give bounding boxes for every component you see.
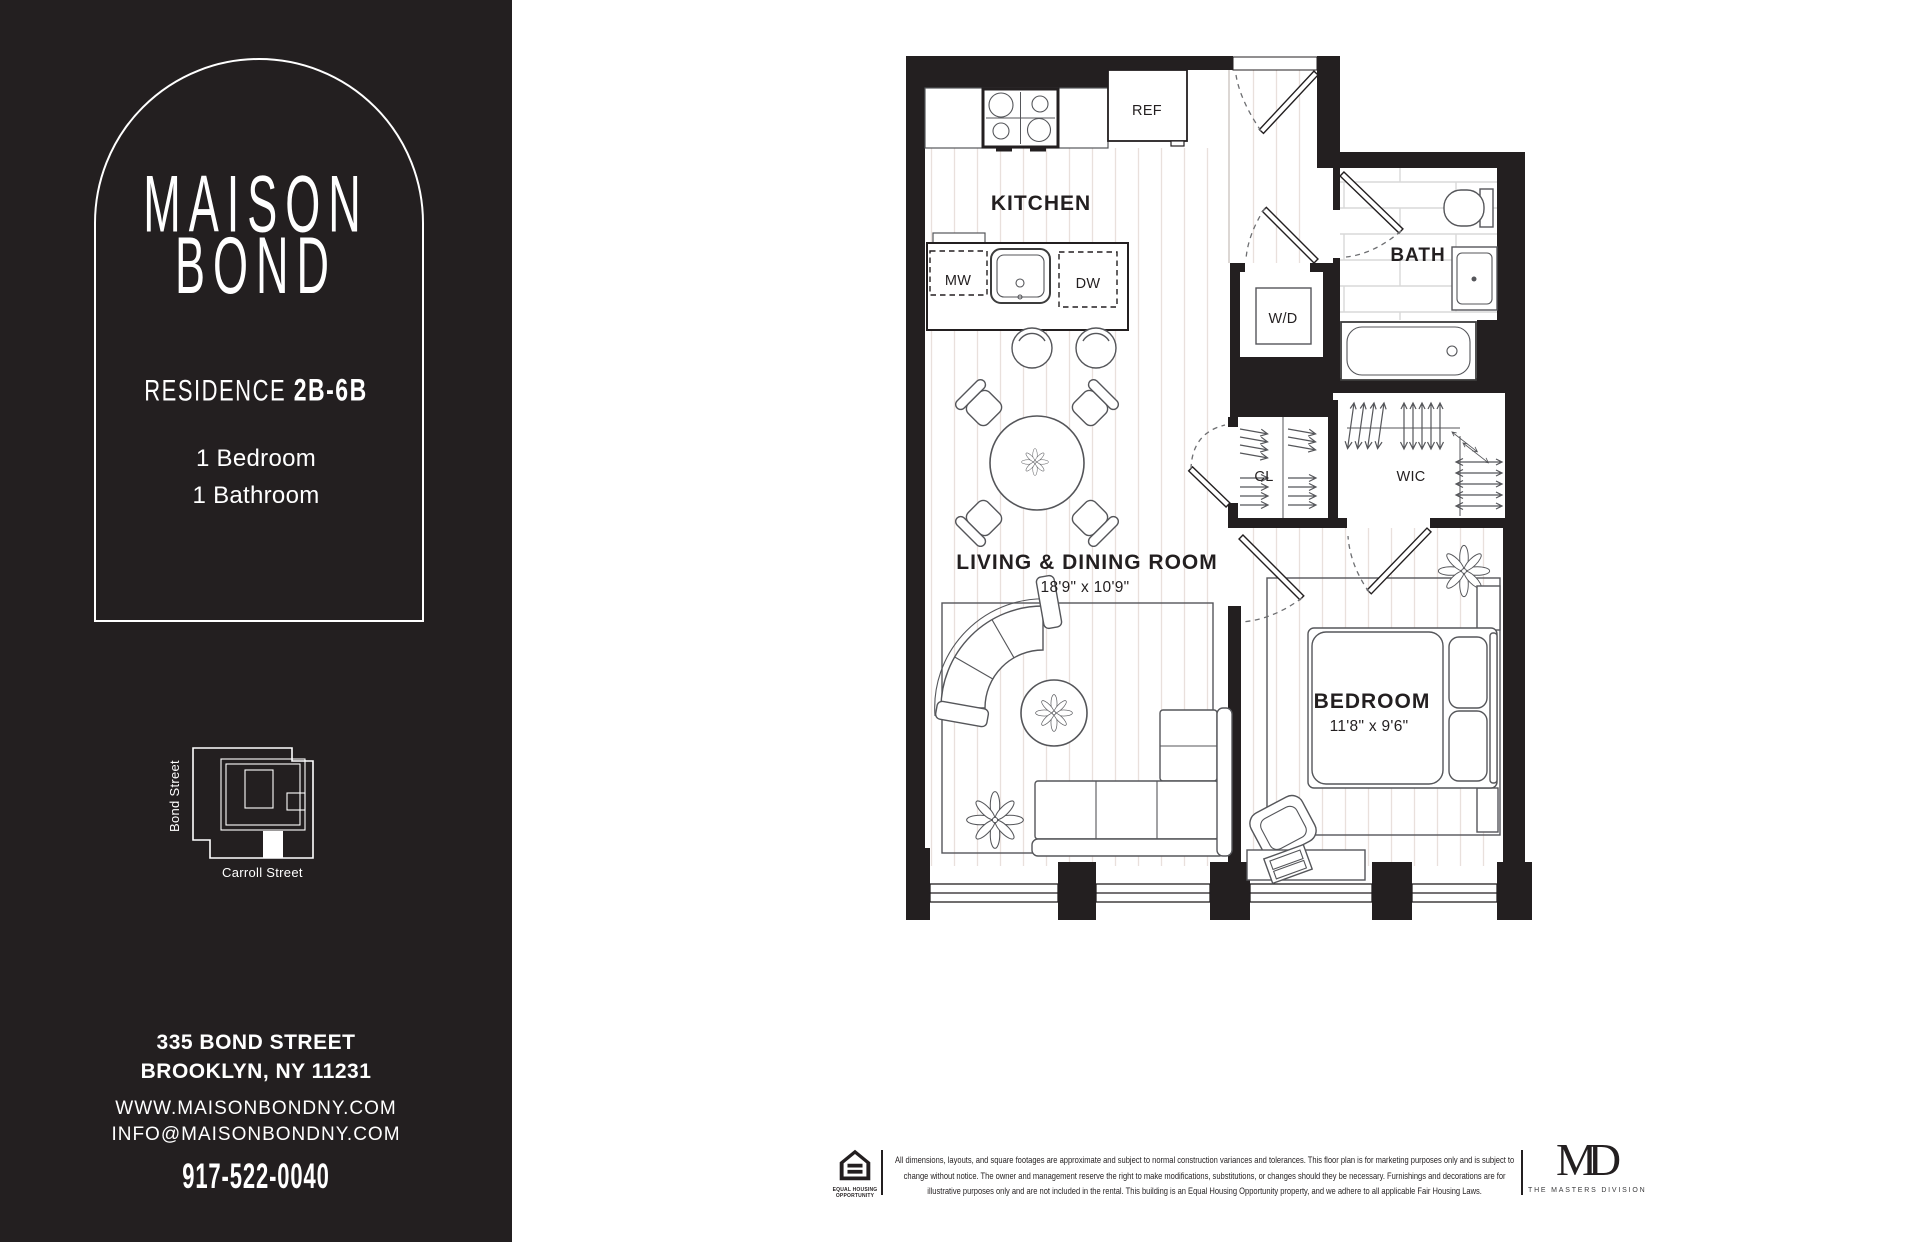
legal-disclaimer: All dimensions, layouts, and square foot… xyxy=(893,1153,1516,1200)
residence-title: RESIDENCE 2B-6B xyxy=(0,372,512,408)
bathtub-icon xyxy=(1341,322,1476,380)
bedroom-count: 1 Bedroom xyxy=(0,440,512,477)
residence-label: RESIDENCE xyxy=(144,373,286,407)
brand-logo-line2: BOND xyxy=(0,235,512,296)
ref-label: REF xyxy=(1132,103,1162,119)
pillow xyxy=(1449,711,1487,781)
mw-label: MW xyxy=(945,273,971,289)
nightstand xyxy=(1477,586,1500,630)
sidebar: MAISON BOND RESIDENCE 2B-6B 1 Bedroom 1 … xyxy=(0,0,512,1242)
kitchen-label: KITCHEN xyxy=(991,192,1091,215)
bathroom-count: 1 Bathroom xyxy=(0,477,512,514)
masters-division-caption: THE MASTERS DIVISION xyxy=(1528,1187,1640,1194)
phone-number[interactable]: 917-522-0040 xyxy=(31,1157,482,1198)
floor-plan: KITCHEN REF MW DW W/D BATH CL WIC LIVING… xyxy=(895,45,1543,925)
console-desk xyxy=(1247,845,1365,884)
contact-block: WWW.MAISONBONDNY.COM INFO@MAISONBONDNY.C… xyxy=(0,1096,512,1148)
headboard xyxy=(1490,633,1497,783)
stove-icon xyxy=(983,89,1058,150)
bath-sink-icon xyxy=(1452,247,1497,310)
site-key-map: Bond Street Carroll Street xyxy=(150,738,335,890)
street-label-bottom: Carroll Street xyxy=(222,865,303,880)
toilet-icon xyxy=(1444,189,1493,227)
unit-summary: 1 Bedroom 1 Bathroom xyxy=(0,440,512,514)
arch-frame xyxy=(94,58,424,622)
building-courtyard xyxy=(245,770,273,808)
address-block: 335 BOND STREET BROOKLYN, NY 11231 xyxy=(0,1028,512,1086)
pillow xyxy=(1449,637,1487,708)
building-notch xyxy=(287,793,305,810)
bath-label: BATH xyxy=(1390,245,1445,266)
footer-divider-right xyxy=(1521,1150,1523,1195)
floorplan-flyer-page: MAISON BOND RESIDENCE 2B-6B 1 Bedroom 1 … xyxy=(0,0,1920,1242)
email-link[interactable]: INFO@MAISONBONDNY.COM xyxy=(0,1122,512,1148)
sink-icon xyxy=(991,249,1050,303)
living-dimensions: 18'9" x 10'9" xyxy=(1041,579,1130,596)
residence-number: 2B-6B xyxy=(294,372,368,407)
nightstand xyxy=(1477,788,1498,832)
equal-housing-icon xyxy=(838,1149,872,1181)
dw-label: DW xyxy=(1076,276,1101,292)
cl-label: CL xyxy=(1254,469,1273,485)
unit-location-marker xyxy=(263,831,283,858)
masters-division-logo: MD THE MASTERS DIVISION xyxy=(1528,1136,1640,1194)
footer-divider-left xyxy=(881,1150,883,1195)
bar-stool xyxy=(1012,328,1052,368)
brand-logo: MAISON BOND xyxy=(0,174,512,296)
equal-housing-caption: EQUAL HOUSING OPPORTUNITY xyxy=(831,1188,879,1199)
street-label-left: Bond Street xyxy=(167,760,182,832)
masters-division-monogram: MD xyxy=(1528,1136,1640,1184)
bedroom-dimensions: 11'8" x 9'6" xyxy=(1330,718,1409,735)
bar-stool xyxy=(1076,328,1116,368)
address-line1: 335 BOND STREET xyxy=(0,1028,512,1057)
bedroom-label: BEDROOM xyxy=(1314,690,1431,713)
website-link[interactable]: WWW.MAISONBONDNY.COM xyxy=(0,1096,512,1122)
living-label: LIVING & DINING ROOM xyxy=(956,551,1218,574)
wic-label: WIC xyxy=(1396,469,1425,485)
address-line2: BROOKLYN, NY 11231 xyxy=(0,1057,512,1086)
closet-hangers xyxy=(1239,403,1502,518)
entry-opening xyxy=(1233,57,1317,70)
wd-label: W/D xyxy=(1268,311,1297,327)
equal-housing-logo: EQUAL HOUSING OPPORTUNITY xyxy=(831,1149,879,1199)
building-outline-inner xyxy=(226,764,300,825)
